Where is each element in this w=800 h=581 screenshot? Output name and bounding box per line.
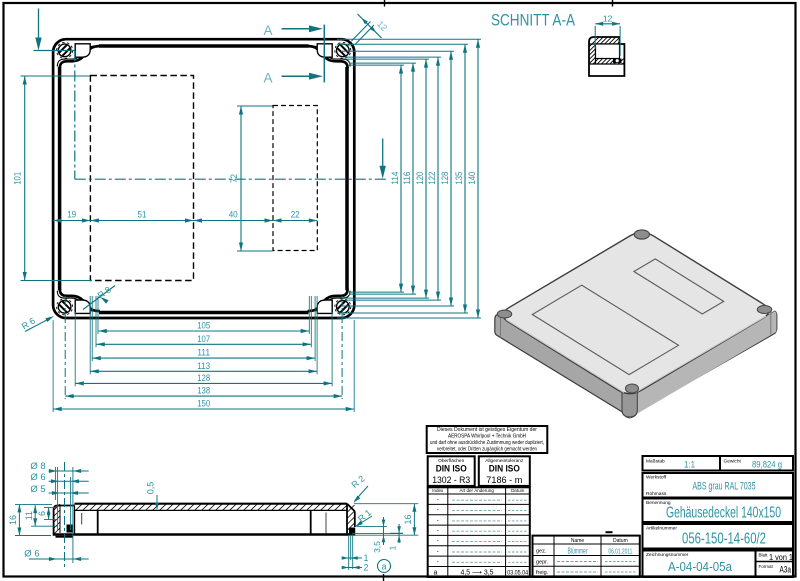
svg-text:a: a <box>434 570 438 577</box>
svg-text:138: 138 <box>197 386 210 396</box>
svg-text:Index: Index <box>432 488 444 493</box>
svg-text:Werkstoff: Werkstoff <box>646 475 667 481</box>
svg-text:114: 114 <box>390 172 400 185</box>
svg-text:Blümmer: Blümmer <box>568 547 588 556</box>
svg-text:gez.: gez. <box>536 549 547 555</box>
svg-text:135: 135 <box>454 172 464 185</box>
svg-text:101: 101 <box>13 172 23 185</box>
svg-text:72: 72 <box>229 174 239 183</box>
svg-text:-: - <box>437 539 439 545</box>
svg-text:verbreitet, oder Dritten zugän: verbreitet, oder Dritten zugänglich gema… <box>437 447 537 453</box>
svg-text:128: 128 <box>197 373 210 383</box>
svg-text:1: 1 <box>363 553 368 563</box>
svg-text:Artikelnummer: Artikelnummer <box>646 526 677 532</box>
svg-text:Maßstab: Maßstab <box>646 459 665 465</box>
svg-text:150: 150 <box>197 399 210 409</box>
svg-text:freig.: freig. <box>536 570 549 576</box>
svg-text:Dieses Dokument ist geistiges: Dieses Dokument ist geistiges Eigentum d… <box>437 427 537 433</box>
svg-text:105: 105 <box>197 321 210 331</box>
svg-text:DIN ISO: DIN ISO <box>489 464 520 475</box>
svg-text:gepr.: gepr. <box>536 560 549 566</box>
svg-text:1: 1 <box>388 545 398 550</box>
svg-text:Ø 5: Ø 5 <box>30 484 45 495</box>
svg-text:Format: Format <box>759 564 774 569</box>
svg-text:-: - <box>437 497 439 503</box>
svg-text:-: - <box>437 528 439 534</box>
svg-text:Ø 8: Ø 8 <box>30 461 45 472</box>
svg-text:Zeichnungsnummer: Zeichnungsnummer <box>646 552 689 558</box>
svg-text:113: 113 <box>197 361 210 371</box>
svg-text:1302 - R3: 1302 - R3 <box>432 475 470 486</box>
svg-text:SCHNITT A-A: SCHNITT A-A <box>491 11 576 30</box>
svg-text:Rohmass: Rohmass <box>646 491 667 497</box>
svg-text:51: 51 <box>138 210 147 220</box>
svg-text:Gewicht: Gewicht <box>724 459 742 465</box>
svg-text:11: 11 <box>24 511 34 520</box>
svg-text:Ø 6: Ø 6 <box>24 549 39 560</box>
svg-text:120: 120 <box>415 172 425 185</box>
svg-text:Art der Änderung: Art der Änderung <box>460 487 495 493</box>
svg-text:7186 - m: 7186 - m <box>486 475 522 486</box>
svg-text:Ø 6: Ø 6 <box>30 472 45 483</box>
svg-text:A-04-04-05a: A-04-04-05a <box>668 560 732 574</box>
svg-text:A: A <box>263 23 272 38</box>
svg-text:03.05.04: 03.05.04 <box>507 570 528 577</box>
svg-text:Datum: Datum <box>613 538 628 544</box>
svg-text:-: - <box>437 559 439 565</box>
svg-text:0,5: 0,5 <box>146 482 156 495</box>
svg-text:a: a <box>381 562 386 572</box>
svg-text:1 von 1: 1 von 1 <box>769 552 793 562</box>
svg-text:und darf ohne ausdrückliche Zu: und darf ohne ausdrückliche Zustimmung w… <box>430 440 544 446</box>
svg-text:AEROSPA Whirlpool + Technik Gm: AEROSPA Whirlpool + Technik GmbH <box>448 434 526 440</box>
svg-text:40: 40 <box>229 210 238 220</box>
svg-text:A: A <box>263 71 272 86</box>
svg-text:6: 6 <box>37 511 47 516</box>
svg-text:140: 140 <box>467 172 477 185</box>
svg-text:A3a: A3a <box>780 565 792 575</box>
svg-text:ABS grau RAL 7035: ABS grau RAL 7035 <box>693 481 756 493</box>
svg-text:2: 2 <box>363 563 368 573</box>
svg-text:-: - <box>437 508 439 514</box>
svg-text:16: 16 <box>403 514 413 524</box>
svg-text:1:1: 1:1 <box>684 460 695 471</box>
svg-text:-: - <box>437 518 439 524</box>
svg-text:111: 111 <box>197 348 210 358</box>
svg-text:128: 128 <box>440 172 450 185</box>
svg-text:-: - <box>437 549 439 555</box>
svg-text:122: 122 <box>427 172 437 185</box>
svg-text:16: 16 <box>8 515 18 525</box>
svg-text:22: 22 <box>291 210 300 220</box>
svg-text:12: 12 <box>603 14 613 24</box>
svg-text:056-150-14-60/2: 056-150-14-60/2 <box>682 531 766 548</box>
svg-text:4,5 ⟶ 3,5: 4,5 ⟶ 3,5 <box>461 570 494 577</box>
svg-text:Blatt: Blatt <box>759 553 769 558</box>
svg-text:107: 107 <box>197 334 210 344</box>
svg-text:Name: Name <box>571 538 585 544</box>
svg-text:3,5: 3,5 <box>372 541 382 553</box>
svg-text:06.01.2011: 06.01.2011 <box>608 547 632 556</box>
svg-text:DIN ISO: DIN ISO <box>436 464 467 475</box>
svg-text:116: 116 <box>402 172 412 185</box>
svg-text:19: 19 <box>67 210 76 220</box>
svg-text:Gehäusedeckel 140x150: Gehäusedeckel 140x150 <box>666 505 781 522</box>
svg-text:Datum: Datum <box>511 488 525 493</box>
svg-text:89,824 g: 89,824 g <box>752 460 782 471</box>
